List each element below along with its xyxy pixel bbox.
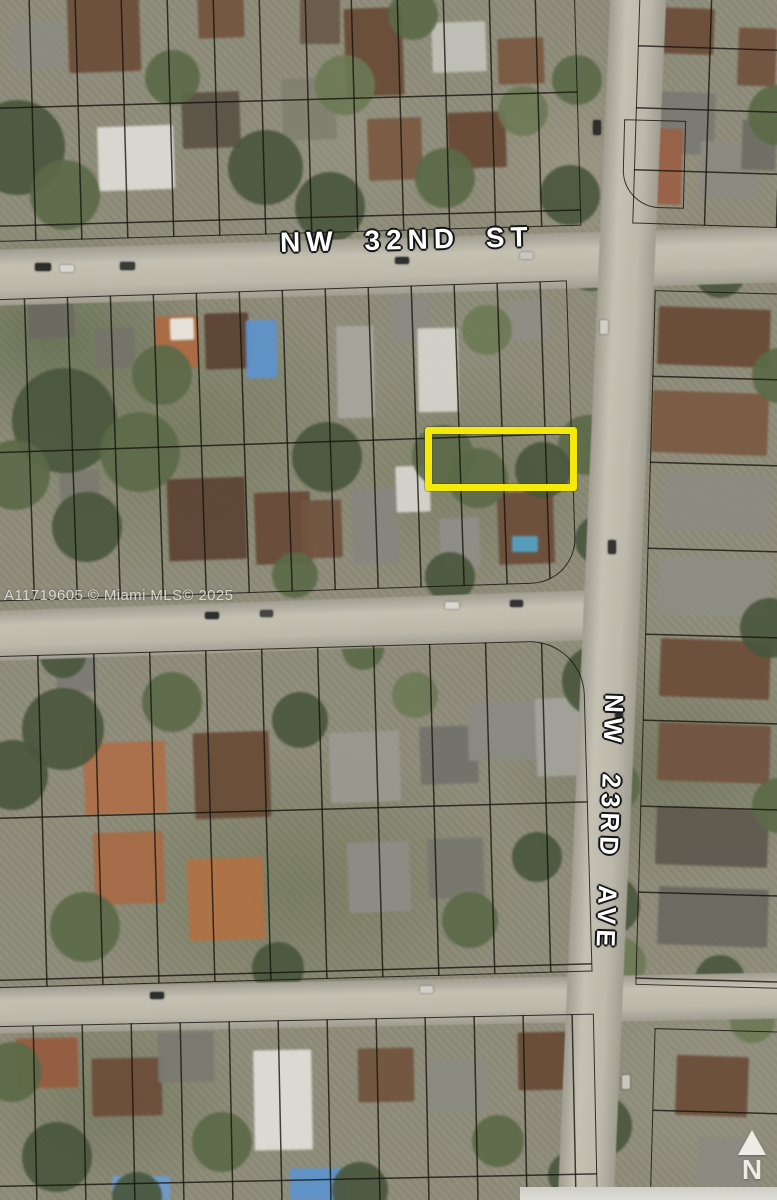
aerial-map-image: NW 32ND ST NW 23RD AVE A11719605 © Miami… xyxy=(0,0,777,1200)
mls-watermark: A11719605 © Miami MLS© 2025 xyxy=(4,587,233,604)
parcel-block-outline xyxy=(0,1014,598,1200)
north-arrow-icon xyxy=(738,1130,766,1155)
street-label-nw-32nd-st: NW 32ND ST xyxy=(280,221,534,259)
parcel-block-outline xyxy=(0,640,593,989)
parcel-block-outline xyxy=(0,0,581,242)
north-arrow: N xyxy=(730,1128,774,1190)
north-arrow-label: N xyxy=(738,1154,766,1186)
parcel-block-outline xyxy=(635,290,777,989)
parcel-block-outline xyxy=(622,119,686,209)
subject-parcel-highlight xyxy=(425,427,577,491)
